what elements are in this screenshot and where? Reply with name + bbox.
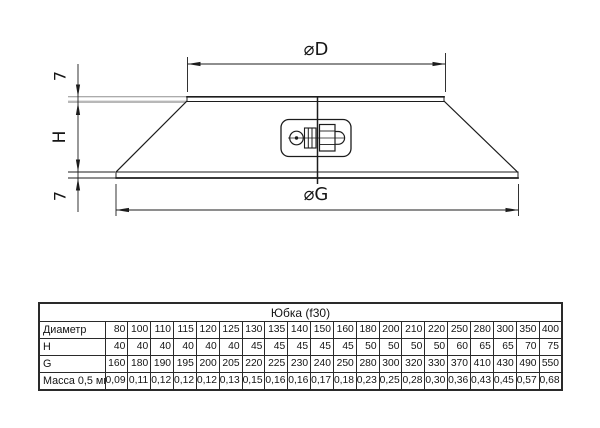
value-cell: 80: [105, 322, 128, 339]
value-cell: 350: [516, 322, 539, 339]
dimension-top-diameter: ⌀D: [188, 39, 446, 92]
value-cell: 210: [402, 322, 425, 339]
value-cell: 180: [128, 356, 151, 373]
value-cell: 50: [402, 339, 425, 356]
value-cell: 180: [356, 322, 379, 339]
value-cell: 0,11: [128, 373, 151, 391]
table-title-row: Юбка (f30): [39, 303, 562, 322]
value-cell: 40: [105, 339, 128, 356]
value-cell: 135: [265, 322, 288, 339]
value-cell: 45: [242, 339, 265, 356]
value-cell: 0,16: [288, 373, 311, 391]
value-cell: 50: [379, 339, 402, 356]
value-cell: 0,18: [333, 373, 356, 391]
value-cell: 0,28: [402, 373, 425, 391]
value-cell: 190: [151, 356, 174, 373]
value-cell: 60: [448, 339, 471, 356]
value-cell: 0,68: [539, 373, 562, 391]
value-cell: 200: [196, 356, 219, 373]
value-cell: 45: [265, 339, 288, 356]
value-cell: 40: [174, 339, 197, 356]
value-cell: 200: [379, 322, 402, 339]
value-cell: 40: [151, 339, 174, 356]
value-cell: 45: [333, 339, 356, 356]
table-row: Диаметр801001101151201251301351401501601…: [39, 322, 562, 339]
value-cell: 130: [242, 322, 265, 339]
table-row: G160180190195200205220225230240250280300…: [39, 356, 562, 373]
value-cell: 220: [425, 322, 448, 339]
value-cell: 115: [174, 322, 197, 339]
value-cell: 0,13: [219, 373, 242, 391]
value-cell: 50: [356, 339, 379, 356]
table-title: Юбка (f30): [39, 303, 562, 322]
value-cell: 120: [196, 322, 219, 339]
value-cell: 0,15: [242, 373, 265, 391]
dimension-left-heights: 7 H 7: [50, 64, 115, 212]
value-cell: 490: [516, 356, 539, 373]
value-cell: 205: [219, 356, 242, 373]
value-cell: 400: [539, 322, 562, 339]
arrowhead: [433, 62, 446, 66]
value-cell: 225: [265, 356, 288, 373]
value-cell: 0,17: [311, 373, 334, 391]
value-cell: 65: [493, 339, 516, 356]
arrowhead: [188, 62, 201, 66]
value-cell: 65: [471, 339, 494, 356]
value-cell: 430: [493, 356, 516, 373]
clamp-bolt-detail: [281, 120, 351, 157]
value-cell: 280: [471, 322, 494, 339]
value-cell: 150: [311, 322, 334, 339]
value-cell: 230: [288, 356, 311, 373]
value-cell: 45: [288, 339, 311, 356]
row-header-cell: Масса 0,5 мм: [39, 373, 105, 391]
label-diameter-d: ⌀D: [304, 39, 329, 60]
value-cell: 0,16: [265, 373, 288, 391]
value-cell: 0,30: [425, 373, 448, 391]
value-cell: 70: [516, 339, 539, 356]
label-diameter-g: ⌀G: [304, 184, 329, 205]
value-cell: 0,12: [151, 373, 174, 391]
value-cell: 370: [448, 356, 471, 373]
value-cell: 100: [128, 322, 151, 339]
value-cell: 330: [425, 356, 448, 373]
value-cell: 250: [333, 356, 356, 373]
value-cell: 160: [333, 322, 356, 339]
value-cell: 300: [493, 322, 516, 339]
value-cell: 0,23: [356, 373, 379, 391]
value-cell: 160: [105, 356, 128, 373]
label-lip-bottom: 7: [51, 191, 70, 201]
value-cell: 0,12: [196, 373, 219, 391]
value-cell: 410: [471, 356, 494, 373]
value-cell: 0,09: [105, 373, 128, 391]
value-cell: 40: [128, 339, 151, 356]
arrowhead: [116, 208, 129, 212]
value-cell: 250: [448, 322, 471, 339]
value-cell: 0,36: [448, 373, 471, 391]
value-cell: 110: [151, 322, 174, 339]
value-cell: 140: [288, 322, 311, 339]
arrowhead: [506, 208, 519, 212]
label-lip-top: 7: [51, 71, 70, 81]
arrowhead: [76, 103, 80, 116]
arrowhead: [76, 85, 80, 98]
value-cell: 0,45: [493, 373, 516, 391]
product-drawing-page: ⌀D ⌀G 7 H 7 Юбка (f30)Диаметр80100110115…: [0, 0, 600, 428]
value-cell: 550: [539, 356, 562, 373]
value-cell: 75: [539, 339, 562, 356]
value-cell: 195: [174, 356, 197, 373]
row-header-cell: H: [39, 339, 105, 356]
arrowhead: [76, 178, 80, 191]
lip-extension-lines: [68, 97, 186, 102]
value-cell: 125: [219, 322, 242, 339]
value-cell: 0,25: [379, 373, 402, 391]
value-cell: 40: [196, 339, 219, 356]
value-cell: 280: [356, 356, 379, 373]
value-cell: 40: [219, 339, 242, 356]
table-row: H404040404040454545454550505050606565707…: [39, 339, 562, 356]
value-cell: 50: [425, 339, 448, 356]
value-cell: 0,57: [516, 373, 539, 391]
dimension-bottom-diameter: ⌀G: [116, 184, 519, 216]
value-cell: 0,43: [471, 373, 494, 391]
row-header-cell: G: [39, 356, 105, 373]
table-row: Масса 0,5 мм0,090,110,120,120,120,130,15…: [39, 373, 562, 391]
value-cell: 320: [402, 356, 425, 373]
value-cell: 300: [379, 356, 402, 373]
row-header-cell: Диаметр: [39, 322, 105, 339]
label-height-h: H: [50, 131, 70, 144]
value-cell: 220: [242, 356, 265, 373]
value-cell: 240: [311, 356, 334, 373]
technical-drawing: ⌀D ⌀G 7 H 7: [0, 0, 600, 250]
value-cell: 0,12: [174, 373, 197, 391]
dimensions-table: Юбка (f30)Диаметр80100110115120125130135…: [38, 302, 563, 391]
arrowhead: [76, 160, 80, 173]
value-cell: 45: [311, 339, 334, 356]
